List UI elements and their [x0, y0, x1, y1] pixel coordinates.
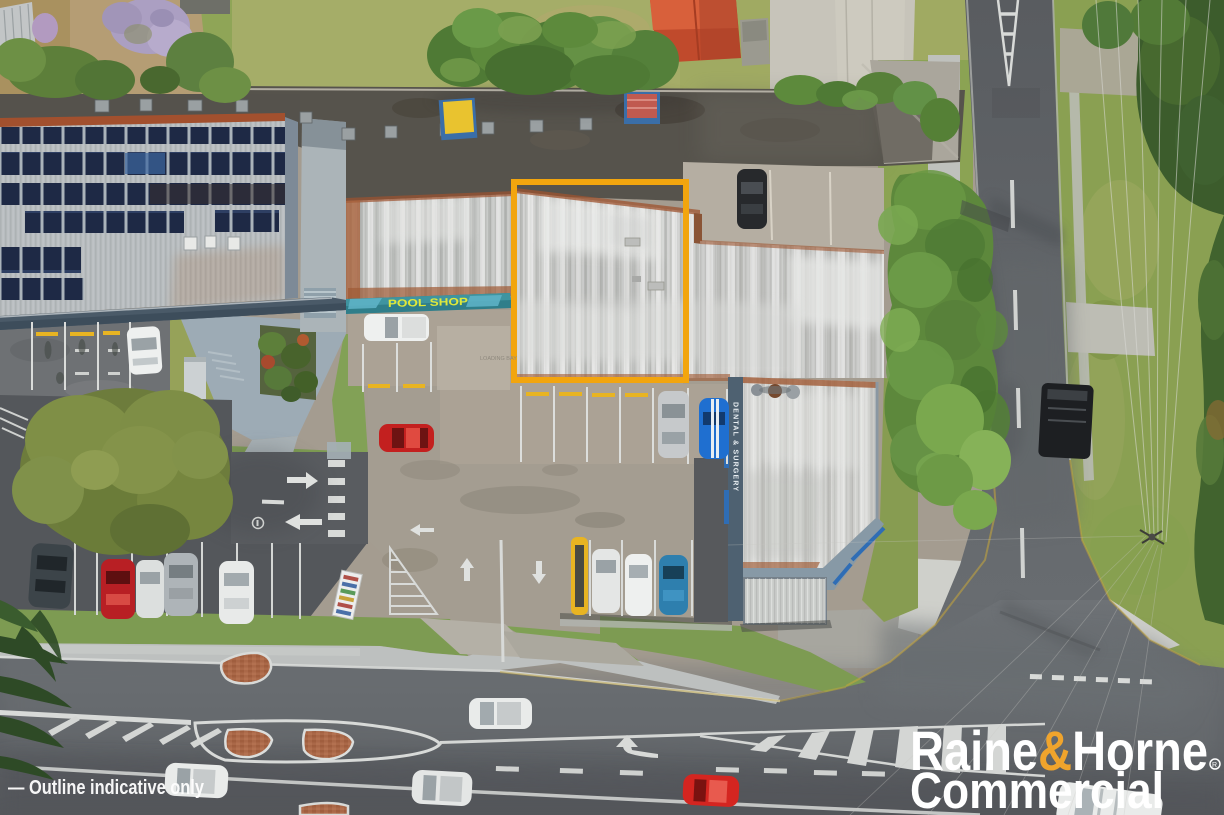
svg-text:POOL SHOP: POOL SHOP	[388, 296, 468, 310]
svg-text:— Outline indicative only: — Outline indicative only	[8, 777, 205, 799]
svg-text:R: R	[1212, 762, 1217, 769]
svg-text:LOADING BAY: LOADING BAY	[480, 356, 517, 362]
svg-text:Commercial: Commercial	[910, 762, 1164, 815]
svg-text:DENTAL & SURGERY: DENTAL & SURGERY	[732, 402, 739, 492]
